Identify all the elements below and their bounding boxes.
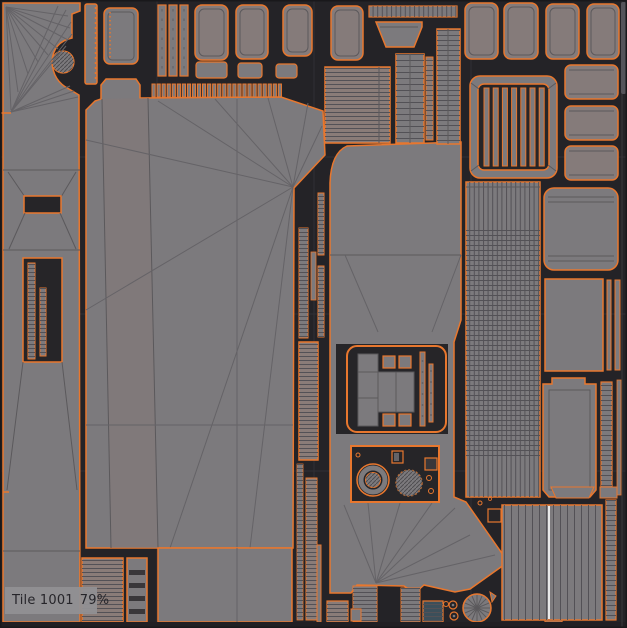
uv-tooth-strip bbox=[213, 84, 216, 97]
uv-circle bbox=[356, 453, 360, 457]
uv-rect bbox=[299, 342, 318, 460]
uv-rounded-plate bbox=[331, 6, 363, 60]
uv-hatched-circle bbox=[52, 51, 74, 73]
uv-tooth-strip bbox=[243, 84, 246, 97]
uv-circle bbox=[427, 476, 432, 481]
uv-tooth-strip bbox=[187, 84, 190, 97]
uv-rect bbox=[399, 356, 411, 368]
uv-slat bbox=[169, 5, 177, 76]
uv-circle bbox=[489, 498, 492, 501]
uv-tooth-strip bbox=[197, 84, 200, 97]
uv-rect bbox=[297, 464, 303, 620]
uv-rounded-plate bbox=[504, 3, 538, 59]
uv-cushion bbox=[544, 188, 618, 270]
uv-rect bbox=[327, 601, 348, 622]
uv-slat bbox=[180, 5, 188, 76]
uv-rect bbox=[129, 570, 145, 575]
uv-rect bbox=[606, 500, 616, 620]
uv-vent-slats bbox=[530, 88, 535, 166]
uv-circle bbox=[396, 470, 422, 496]
uv-tooth-bar bbox=[369, 6, 457, 17]
uv-rect bbox=[129, 609, 145, 614]
uv-rounded-plate bbox=[236, 5, 268, 59]
uv-rounded-plate bbox=[195, 5, 228, 60]
uv-small-plate bbox=[238, 63, 262, 78]
uv-rect bbox=[394, 453, 399, 461]
uv-ladder-strip bbox=[28, 263, 35, 359]
tile-coverage-text: 79% bbox=[80, 587, 110, 614]
uv-rect bbox=[317, 545, 321, 622]
uv-rect bbox=[601, 382, 612, 497]
scrollbar-thumb bbox=[621, 2, 626, 94]
uv-rect bbox=[358, 354, 378, 426]
uv-tooth-strip bbox=[218, 84, 221, 97]
uv-blue-block bbox=[423, 601, 443, 622]
uv-cutout bbox=[24, 196, 61, 213]
uv-vent-slats bbox=[493, 88, 498, 166]
uv-rounded-plate bbox=[104, 8, 138, 64]
uv-tooth-strip bbox=[208, 84, 211, 97]
tile-label-text: Tile 1001 bbox=[12, 587, 74, 614]
uv-rect bbox=[318, 193, 324, 255]
uv-striped-panel bbox=[502, 505, 602, 620]
uv-rect bbox=[306, 478, 317, 620]
uv-tooth-strip bbox=[162, 84, 165, 97]
uv-rect bbox=[383, 414, 395, 426]
uv-circle bbox=[452, 604, 455, 607]
uv-tooth-strip bbox=[273, 84, 276, 97]
uv-slat bbox=[158, 5, 166, 76]
uv-circle bbox=[429, 489, 434, 494]
uv-tooth-strip bbox=[192, 84, 195, 97]
uv-rect bbox=[401, 588, 420, 622]
uv-vent-slats bbox=[502, 88, 507, 166]
uv-canvas[interactable] bbox=[0, 0, 627, 628]
uv-rect bbox=[299, 228, 308, 338]
uv-tooth-strip bbox=[258, 84, 261, 97]
uv-rect bbox=[545, 279, 603, 371]
viewport-edge bbox=[0, 0, 2, 628]
uv-tooth-strip bbox=[167, 84, 170, 97]
uv-ladder-strip bbox=[40, 288, 46, 356]
uv-small-plate bbox=[276, 64, 297, 78]
uv-rect bbox=[383, 356, 395, 368]
uv-tooth-strip bbox=[177, 84, 180, 97]
uv-rect bbox=[466, 226, 540, 460]
uv-circle bbox=[478, 501, 482, 505]
uv-circle bbox=[453, 615, 456, 618]
uv-vent-slats bbox=[512, 88, 517, 166]
uv-rect bbox=[318, 266, 324, 337]
uv-tombstone bbox=[543, 378, 596, 497]
uv-tooth-strip bbox=[152, 84, 155, 97]
uv-vent-slats bbox=[484, 88, 489, 166]
uv-rect bbox=[617, 380, 621, 495]
uv-rect bbox=[425, 458, 437, 470]
uv-rect bbox=[351, 609, 361, 621]
viewport-edge bbox=[0, 0, 627, 2]
uv-circle bbox=[444, 602, 449, 607]
uv-rect bbox=[129, 583, 145, 588]
uv-tooth-strip bbox=[238, 84, 241, 97]
uv-poly bbox=[551, 487, 594, 498]
uv-tooth-strip bbox=[268, 84, 271, 97]
uv-plain-block bbox=[158, 548, 292, 622]
uv-editor-viewport[interactable]: Tile 1001 79% bbox=[0, 0, 627, 628]
uv-rect bbox=[420, 352, 425, 426]
uv-rounded-plate bbox=[465, 3, 498, 59]
uv-rect bbox=[426, 57, 433, 140]
uv-tooth-strip bbox=[253, 84, 256, 97]
uv-rect bbox=[615, 280, 620, 370]
uv-rect bbox=[311, 252, 316, 300]
uv-tooth-strip bbox=[248, 84, 251, 97]
uv-rect bbox=[129, 596, 145, 601]
uv-striped-block bbox=[325, 67, 390, 143]
uv-shapes-layer bbox=[0, 0, 627, 628]
uv-rect bbox=[600, 487, 617, 498]
tile-label: Tile 1001 79% bbox=[5, 587, 97, 614]
uv-tooth-strip bbox=[228, 84, 231, 97]
uv-rounded-plate bbox=[546, 4, 579, 59]
uv-tooth-strip bbox=[172, 84, 175, 97]
uv-tooth-strip bbox=[233, 84, 236, 97]
uv-tooth-strip bbox=[278, 84, 281, 97]
uv-tooth-strip bbox=[203, 84, 206, 97]
uv-rect bbox=[399, 414, 411, 426]
uv-rounded-plate bbox=[587, 4, 619, 59]
uv-tooth-strip bbox=[263, 84, 266, 97]
uv-white-seam bbox=[548, 506, 550, 619]
uv-rect bbox=[488, 509, 501, 522]
uv-tooth-strip bbox=[223, 84, 226, 97]
uv-circle bbox=[366, 473, 381, 488]
uv-tooth-strip bbox=[157, 84, 160, 97]
uv-vent-slats bbox=[521, 88, 526, 166]
uv-small-plate bbox=[196, 62, 227, 78]
uv-rect bbox=[607, 280, 611, 370]
uv-vent-slats bbox=[539, 88, 544, 166]
uv-tooth-strip bbox=[182, 84, 185, 97]
